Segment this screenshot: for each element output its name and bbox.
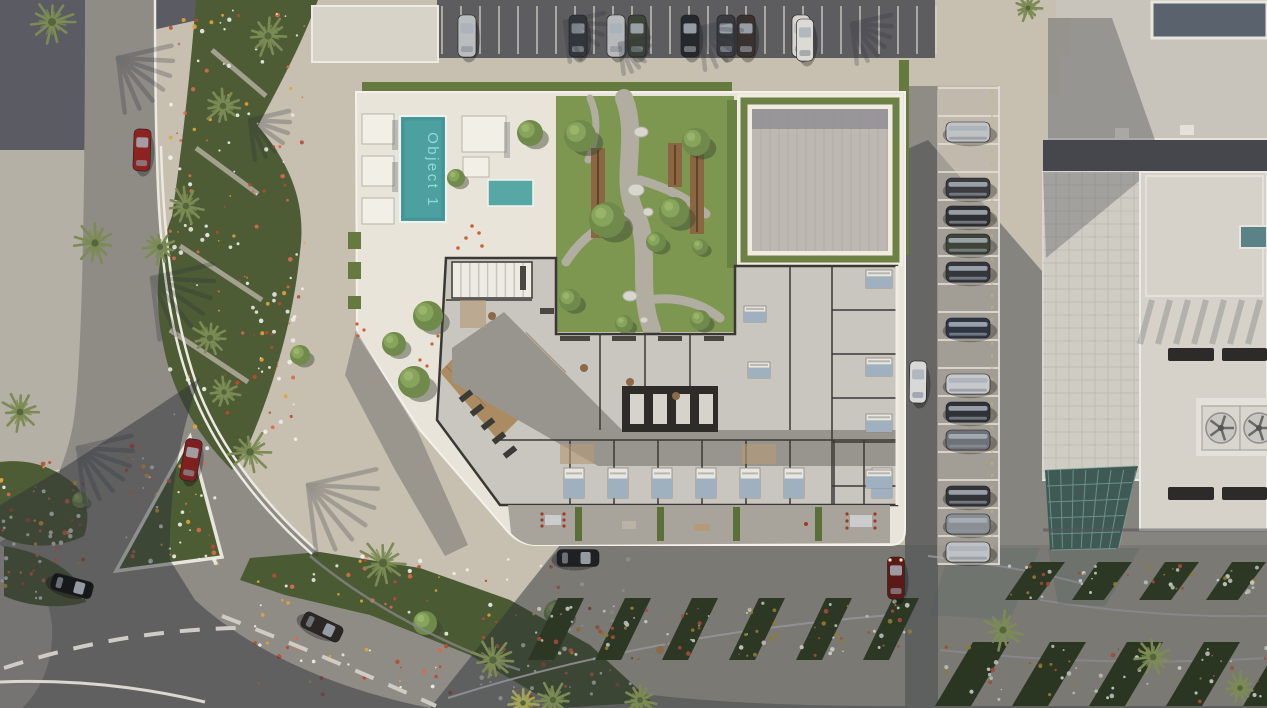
- neighbor-building-north: [1043, 0, 1267, 172]
- bed: [652, 468, 672, 498]
- bed: [564, 468, 584, 498]
- bed: [866, 270, 892, 288]
- bed: [608, 468, 628, 498]
- vent: [1168, 348, 1214, 361]
- bed: [784, 468, 804, 498]
- parapet-shadow: [752, 109, 888, 129]
- ac-fans: [1202, 406, 1267, 450]
- north-hedge: [362, 82, 732, 92]
- aerial-site-view: Object 1: [0, 0, 1267, 708]
- bed: [740, 468, 760, 498]
- parked-car: [943, 178, 998, 202]
- hedge-boxes: [348, 232, 361, 309]
- jacuzzi: [488, 180, 533, 206]
- skylight: [1240, 226, 1267, 248]
- parked-car: [943, 122, 998, 146]
- vent: [1168, 487, 1214, 500]
- entrance-canopy: [312, 6, 438, 62]
- object-1-label[interactable]: Object 1: [424, 132, 441, 208]
- bed: [696, 468, 716, 498]
- rooftop-skylight: [1152, 2, 1267, 38]
- parked-car: [943, 234, 998, 258]
- roof-terrace: [737, 94, 903, 266]
- neighbor-building-east: [1043, 172, 1267, 550]
- site-render: Object 1: [0, 0, 1267, 708]
- parked-car: [943, 430, 998, 454]
- bed: [866, 358, 892, 376]
- parked-car: [943, 514, 998, 538]
- bed: [866, 414, 892, 432]
- parked-car: [943, 206, 998, 230]
- hedge: [727, 100, 737, 268]
- parked-car: [943, 486, 998, 510]
- bed: [744, 306, 766, 322]
- bed: [866, 470, 892, 488]
- vent: [1222, 487, 1267, 500]
- parked-car: [943, 318, 998, 342]
- bed: [748, 362, 770, 378]
- parked-car: [943, 402, 998, 426]
- vent: [1222, 348, 1267, 361]
- parked-car: [943, 542, 998, 566]
- parked-car: [943, 262, 998, 286]
- parked-car: [943, 374, 998, 398]
- alley: [1043, 140, 1267, 172]
